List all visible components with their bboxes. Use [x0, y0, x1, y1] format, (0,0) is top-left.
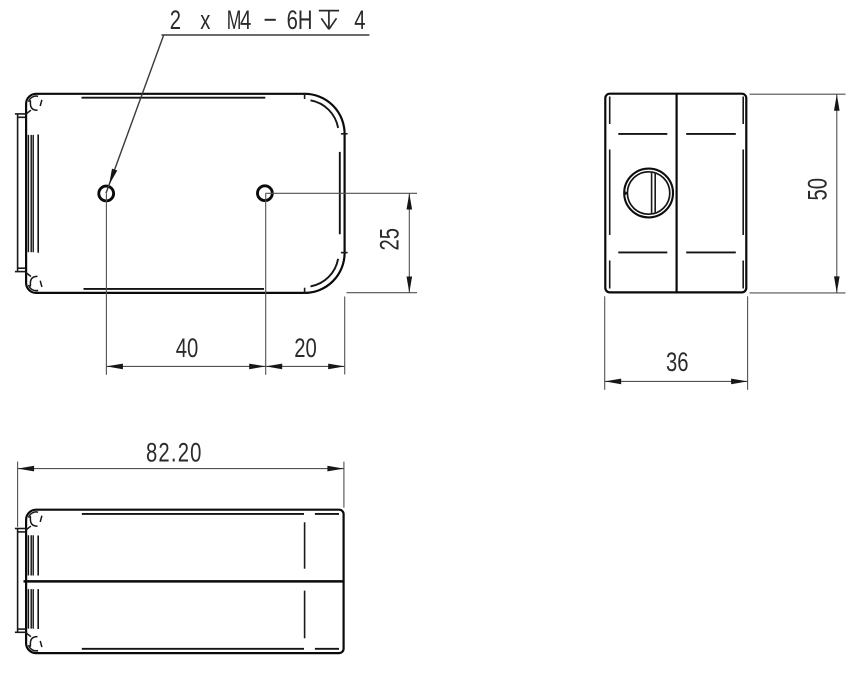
- svg-text:82.20: 82.20: [146, 438, 203, 469]
- svg-text:x: x: [200, 5, 210, 36]
- svg-text:36: 36: [666, 347, 689, 378]
- svg-text:20: 20: [294, 333, 317, 364]
- svg-text:40: 40: [176, 333, 199, 364]
- svg-text:2: 2: [170, 5, 181, 36]
- svg-text:50: 50: [803, 178, 834, 201]
- svg-text:M: M: [227, 4, 242, 35]
- svg-text:4: 4: [240, 5, 251, 36]
- svg-text:25: 25: [375, 228, 406, 251]
- svg-text:4: 4: [354, 5, 365, 36]
- svg-text:6H: 6H: [287, 5, 313, 36]
